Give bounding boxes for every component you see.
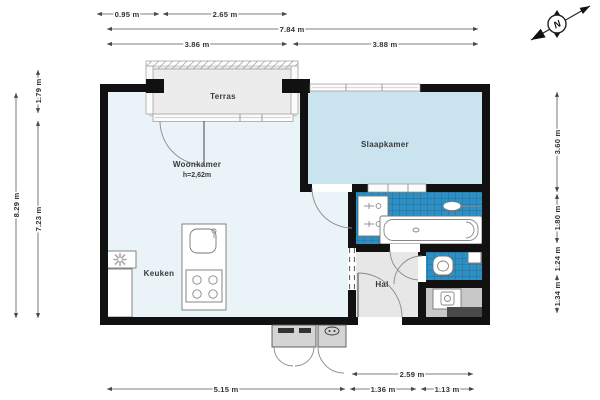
kitchen-counter bbox=[104, 269, 132, 317]
utility-counter bbox=[447, 307, 482, 317]
dim-top-4: 3.88 m bbox=[373, 40, 398, 49]
dim-bottom-3: 1.13 m bbox=[435, 385, 460, 394]
room-slaapkamer bbox=[308, 91, 482, 184]
label-woonkamer: Woonkamer bbox=[173, 160, 221, 169]
sink-icon bbox=[190, 229, 216, 253]
dim-top-0: 0.95 m bbox=[115, 10, 140, 19]
label-hal: Hal bbox=[375, 280, 388, 289]
dim-top-2: 7.84 m bbox=[280, 25, 305, 34]
terras-facade-window bbox=[153, 114, 293, 122]
dimensions-top: 0.95 m 2.65 m 7.84 m 3.86 m 3.88 m bbox=[97, 10, 478, 49]
dimensions-bottom: 2.59 m 5.15 m 1.36 m 1.13 m bbox=[107, 370, 474, 394]
dimensions-left: 8.29 m 1.79 m 7.23 m bbox=[12, 70, 43, 318]
toilet-icon bbox=[433, 256, 453, 275]
bathtub-icon bbox=[380, 216, 482, 244]
boiler-unit bbox=[104, 251, 136, 268]
compass-icon: N bbox=[531, 6, 590, 40]
washing-machine-icon bbox=[433, 289, 461, 309]
toilet-shelf bbox=[468, 252, 481, 263]
label-slaapkamer: Slaapkamer bbox=[361, 140, 409, 149]
dim-top-3: 3.86 m bbox=[185, 40, 210, 49]
label-woonkamer-height: h=2,62m bbox=[183, 172, 211, 179]
dim-bottom-1: 5.15 m bbox=[214, 385, 239, 394]
dim-left-inner-1: 7.23 m bbox=[34, 207, 43, 232]
dim-right-1: 1.80 m bbox=[553, 206, 562, 231]
stove-icon bbox=[186, 270, 222, 302]
dim-bottom-0: 2.59 m bbox=[400, 370, 425, 379]
label-keuken: Keuken bbox=[144, 269, 175, 278]
label-terras: Terras bbox=[210, 92, 236, 101]
badkamer-window-strip bbox=[368, 184, 426, 192]
hal-open-passage bbox=[348, 248, 356, 290]
dim-top-1: 2.65 m bbox=[213, 10, 238, 19]
dim-right-3: 1.34 m bbox=[553, 282, 562, 307]
kitchen-island bbox=[182, 224, 226, 310]
hob-flower-icon bbox=[114, 254, 126, 266]
floorplan-canvas: Terras Woonkamer h=2,62m Slaapkamer Keuk… bbox=[0, 0, 600, 400]
dim-right-0: 3.60 m bbox=[553, 130, 562, 155]
slaapkamer-window bbox=[310, 84, 420, 91]
dimensions-right: 3.60 m 1.80 m 1.24 m 1.34 m bbox=[553, 92, 562, 313]
room-terras bbox=[150, 66, 296, 116]
dim-left-inner-0: 1.79 m bbox=[34, 79, 43, 104]
dim-bottom-2: 1.36 m bbox=[371, 385, 396, 394]
dim-left-outer: 8.29 m bbox=[12, 193, 21, 218]
meter-closets bbox=[272, 325, 346, 373]
floorplan-svg: Terras Woonkamer h=2,62m Slaapkamer Keuk… bbox=[0, 0, 600, 400]
dim-right-2: 1.24 m bbox=[553, 247, 562, 272]
